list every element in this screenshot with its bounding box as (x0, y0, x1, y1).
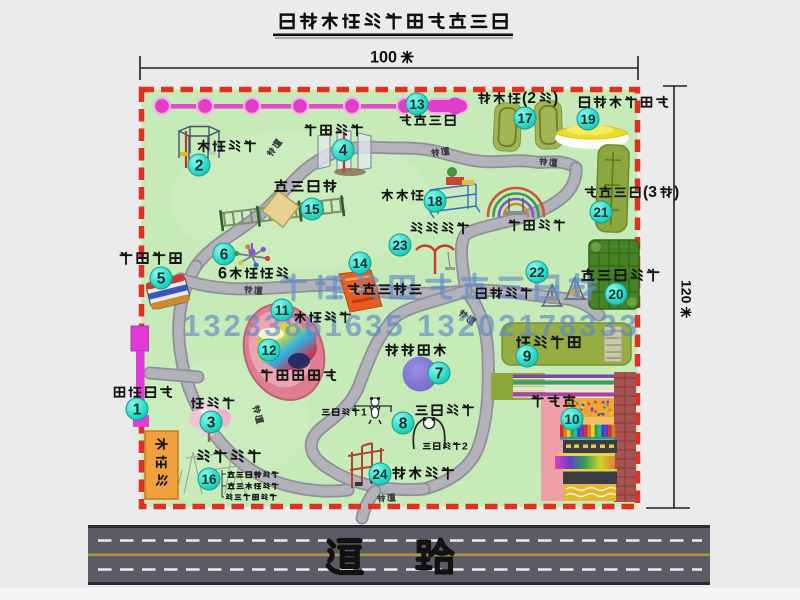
svg-text:24: 24 (372, 467, 388, 482)
svg-text:6: 6 (220, 247, 229, 264)
svg-text:): ) (553, 90, 558, 107)
svg-text:15: 15 (304, 202, 320, 217)
svg-text:6: 6 (218, 264, 227, 282)
svg-text:22: 22 (529, 265, 544, 280)
svg-text:21: 21 (593, 205, 609, 220)
svg-text:(2: (2 (522, 90, 536, 107)
svg-text:19: 19 (580, 112, 595, 127)
svg-text:120: 120 (678, 280, 694, 304)
svg-text:2: 2 (462, 441, 468, 452)
svg-text:11: 11 (275, 303, 290, 318)
svg-text:100: 100 (370, 48, 397, 66)
svg-text:8: 8 (399, 416, 408, 433)
svg-text:1: 1 (361, 407, 367, 418)
svg-text:23: 23 (392, 238, 408, 253)
svg-text:3: 3 (207, 415, 216, 432)
svg-text:9: 9 (523, 349, 532, 366)
svg-text:16: 16 (201, 472, 217, 487)
svg-text:18: 18 (427, 194, 443, 209)
svg-text:14: 14 (352, 256, 368, 271)
svg-text:10: 10 (564, 412, 579, 427)
svg-text:5: 5 (157, 271, 166, 288)
svg-text:20: 20 (608, 287, 623, 302)
svg-text:13: 13 (409, 97, 425, 112)
svg-text:1: 1 (133, 402, 142, 419)
svg-text:4: 4 (339, 143, 348, 160)
svg-text:(3: (3 (643, 184, 657, 201)
svg-text:2: 2 (195, 158, 204, 175)
svg-text:17: 17 (517, 111, 532, 126)
svg-text:12: 12 (261, 343, 276, 358)
svg-text:): ) (674, 184, 679, 201)
svg-text:7: 7 (435, 366, 444, 383)
